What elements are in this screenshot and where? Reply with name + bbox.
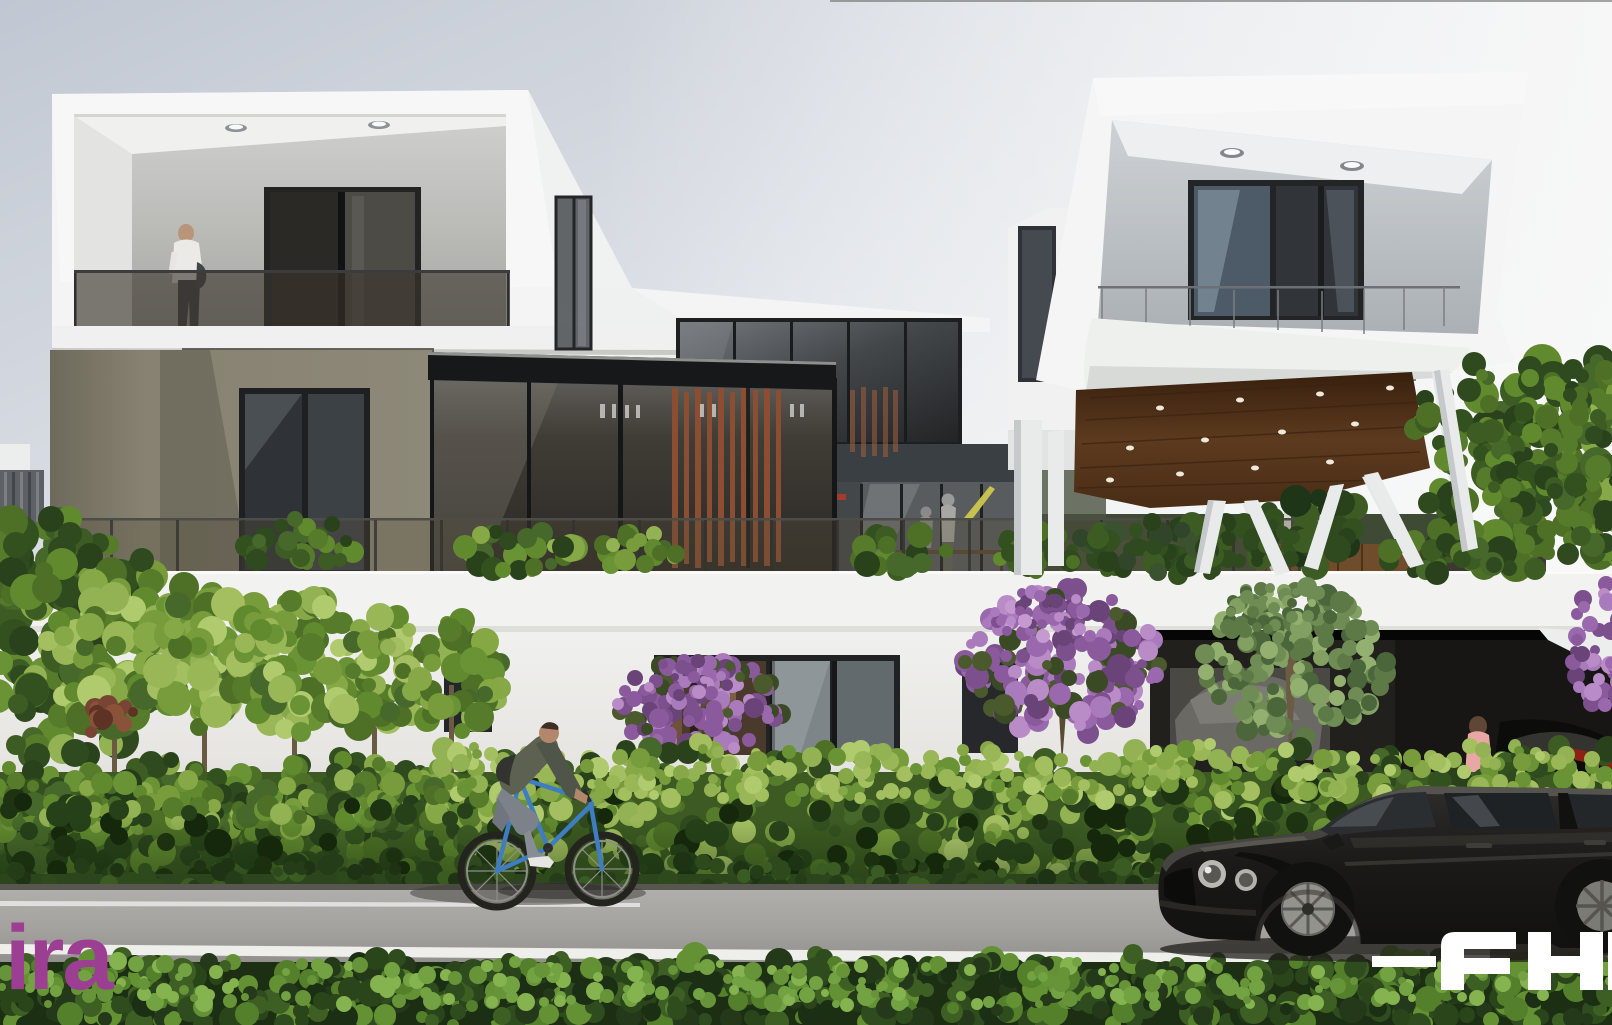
svg-text:ira: ira — [5, 907, 114, 1009]
